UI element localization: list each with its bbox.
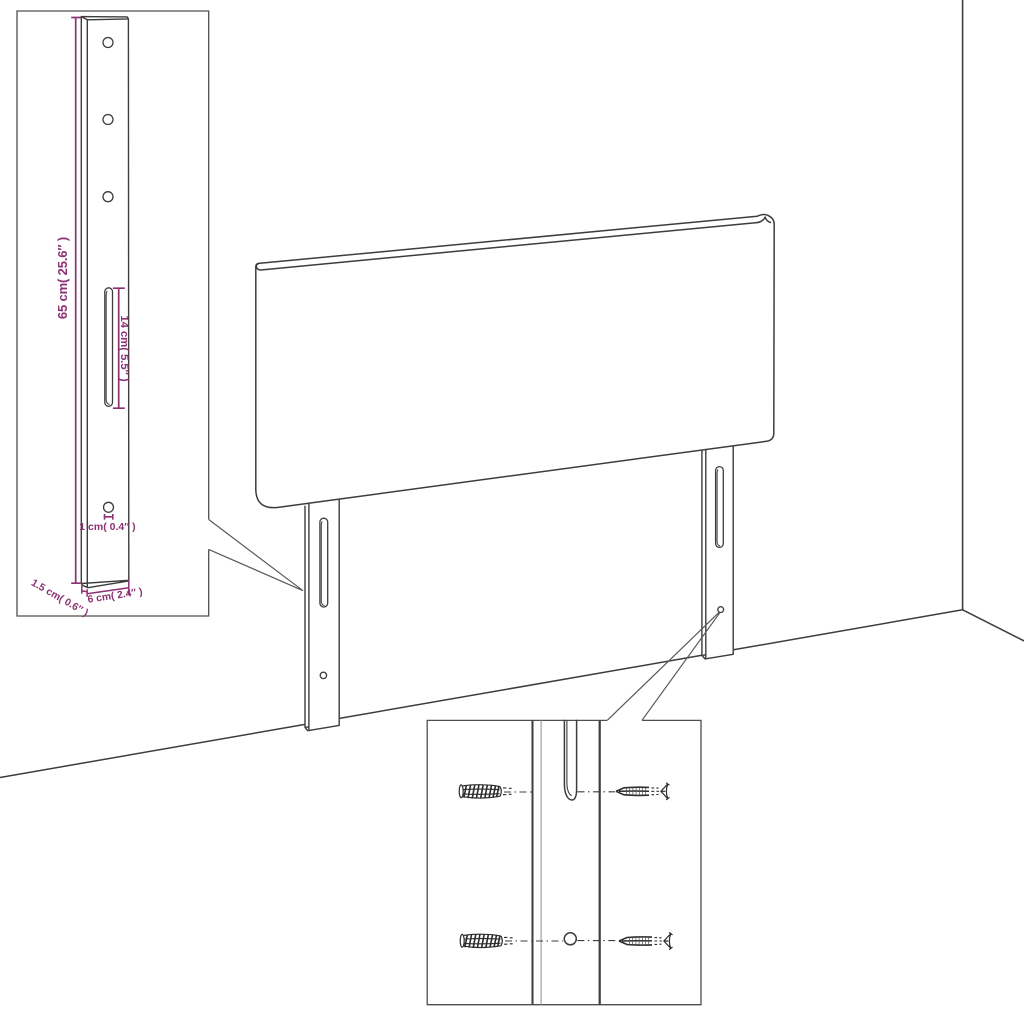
svg-text:14 cm( 5.5″ ): 14 cm( 5.5″ )	[118, 315, 130, 382]
svg-text:65 cm( 25.6″ ): 65 cm( 25.6″ )	[55, 237, 70, 319]
svg-text:1 cm( 0.4″ ): 1 cm( 0.4″ )	[79, 521, 135, 533]
